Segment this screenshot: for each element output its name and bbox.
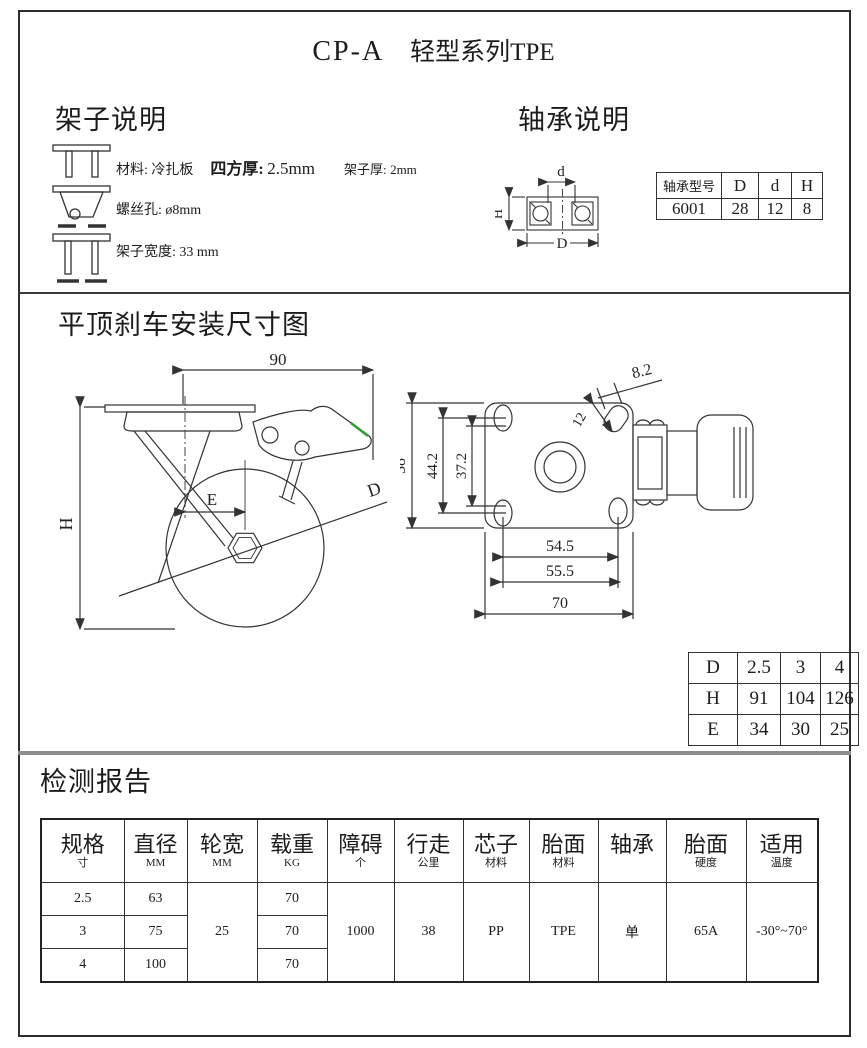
frame-swivel-icon (50, 184, 114, 234)
dhe-D-val-1: 2.5 (738, 653, 781, 684)
dhe-row-D-label: D (689, 653, 738, 684)
bearing-section-heading: 轴承说明 (518, 98, 630, 137)
caster-top-view-drawing: 58 44.2 37.2 54.5 55.5 70 12 8.2 (400, 352, 780, 642)
material-label: 材料: 冷扎板 (116, 163, 193, 178)
size-cell: 4 (41, 949, 124, 983)
table-row: 轴承型号 D d H (657, 173, 823, 199)
load-cell: 70 (257, 949, 327, 983)
bearing-d-header: d (759, 173, 792, 199)
col-wheel-width: 轮宽MM (187, 819, 257, 883)
table-row: H 91 104 126 (689, 684, 859, 715)
size-cell: 3 (41, 916, 124, 949)
size-cell: 2.5 (41, 883, 124, 916)
diameter-cell: 75 (124, 916, 187, 949)
side-dim-H-label: H (56, 518, 76, 531)
frame-thickness-label: 架子厚: (344, 162, 387, 177)
square-thickness-label: 四方厚: (210, 161, 263, 178)
caster-side-view-drawing: 90 H E D (55, 348, 405, 660)
top-dim-70-label: 70 (552, 595, 568, 612)
frame-section-heading: 架子说明 (55, 98, 167, 137)
top-dim-55-5-label: 55.5 (546, 563, 574, 580)
bearing-H-header: H (792, 173, 823, 199)
dhe-D-val-2: 3 (781, 653, 821, 684)
bearing-cell: 单 (598, 883, 666, 983)
bearing-model-header: 轴承型号 (657, 173, 722, 199)
screw-hole-value: ø8mm (165, 203, 201, 218)
report-header-row: 规格寸 直径MM 轮宽MM 载重KG 障碍个 行走公里 芯子材料 胎面材料 轴承… (41, 819, 818, 883)
screw-hole-label: 螺丝孔: (116, 203, 162, 218)
bearing-spec-table: 轴承型号 D d H 6001 28 12 8 (656, 172, 823, 220)
bearing-dim-D-label: D (557, 236, 568, 252)
col-load: 载重KG (257, 819, 327, 883)
frame-top-plate-icon (50, 140, 114, 182)
square-thickness-value: 2.5mm (267, 159, 315, 178)
diameter-cell: 63 (124, 883, 187, 916)
dhe-D-val-3: 4 (821, 653, 859, 684)
col-obstacle: 障碍个 (327, 819, 394, 883)
col-temperature: 适用温度 (746, 819, 818, 883)
col-tread-material: 胎面材料 (529, 819, 598, 883)
dhe-row-E-label: E (689, 715, 738, 746)
side-dim-90-label: 90 (270, 350, 287, 369)
diameter-cell: 100 (124, 949, 187, 983)
col-size: 规格寸 (41, 819, 124, 883)
top-dim-12-label: 12 (570, 410, 590, 430)
col-bearing: 轴承 (598, 819, 666, 883)
drawing-section-heading: 平顶刹车安装尺寸图 (58, 303, 310, 342)
frame-material-line: 材料: 冷扎板 四方厚: 2.5mm 架子厚: 2mm (116, 155, 417, 179)
side-dim-E-label: E (207, 490, 217, 509)
core-material-cell: PP (463, 883, 529, 983)
top-dim-44-2-label: 44.2 (425, 453, 441, 479)
bearing-cross-section-diagram: d H D (495, 158, 650, 255)
report-section-heading: 检测报告 (40, 760, 152, 799)
top-dim-37-2-label: 37.2 (454, 453, 470, 479)
load-cell: 70 (257, 916, 327, 949)
bearing-D-value: 28 (722, 199, 759, 220)
dhe-H-val-1: 91 (738, 684, 781, 715)
top-dim-58-label: 58 (400, 458, 409, 474)
distance-cell: 38 (394, 883, 463, 983)
test-report-table: 规格寸 直径MM 轮宽MM 载重KG 障碍个 行走公里 芯子材料 胎面材料 轴承… (40, 818, 819, 983)
dhe-E-val-2: 30 (781, 715, 821, 746)
dhe-H-val-2: 104 (781, 684, 821, 715)
frame-width-label: 架子宽度: (116, 245, 176, 260)
bearing-D-header: D (722, 173, 759, 199)
dhe-size-table: D 2.5 3 4 H 91 104 126 E 34 30 25 (688, 652, 859, 746)
dhe-E-val-1: 34 (738, 715, 781, 746)
table-row: E 34 30 25 (689, 715, 859, 746)
dhe-E-val-3: 25 (821, 715, 859, 746)
col-diameter: 直径MM (124, 819, 187, 883)
spec-sheet-page: CP-A轻型系列TPE 架子说明 材料: 冷扎板 四方厚: 2.5mm (0, 0, 867, 1048)
product-code: CP-A (312, 36, 384, 67)
load-cell: 70 (257, 883, 327, 916)
product-series: 轻型系列TPE (410, 39, 554, 66)
frame-width-line: 架子宽度: 33 mm (116, 241, 219, 261)
dhe-row-H-label: H (689, 684, 738, 715)
hardness-cell: 65A (666, 883, 746, 983)
bearing-model-value: 6001 (657, 199, 722, 220)
dhe-H-val-3: 126 (821, 684, 859, 715)
col-hardness: 胎面硬度 (666, 819, 746, 883)
report-row-2-5: 2.5 63 25 70 1000 38 PP TPE 单 65A -30°~7… (41, 883, 818, 916)
wheel-width-cell: 25 (187, 883, 257, 983)
section-divider-bottom (18, 751, 851, 755)
frame-thickness-value: 2mm (390, 162, 417, 177)
side-dim-D-label: D (365, 478, 384, 501)
col-distance: 行走公里 (394, 819, 463, 883)
frame-width-icon (50, 232, 114, 288)
top-dim-8-2-label: 8.2 (630, 361, 654, 382)
tread-material-cell: TPE (529, 883, 598, 983)
bearing-dim-d-label: d (557, 164, 565, 180)
temperature-cell: -30°~70° (746, 883, 818, 983)
top-dim-54-5-label: 54.5 (546, 538, 574, 555)
bearing-dim-H-label: H (495, 209, 506, 219)
obstacle-cell: 1000 (327, 883, 394, 983)
screw-hole-line: 螺丝孔: ø8mm (116, 199, 201, 219)
table-row: 6001 28 12 8 (657, 199, 823, 220)
page-title: CP-A轻型系列TPE (0, 32, 867, 68)
section-divider-top (18, 292, 851, 294)
frame-width-value: 33 mm (179, 245, 218, 260)
table-row: D 2.5 3 4 (689, 653, 859, 684)
col-core-material: 芯子材料 (463, 819, 529, 883)
bearing-d-value: 12 (759, 199, 792, 220)
bearing-H-value: 8 (792, 199, 823, 220)
